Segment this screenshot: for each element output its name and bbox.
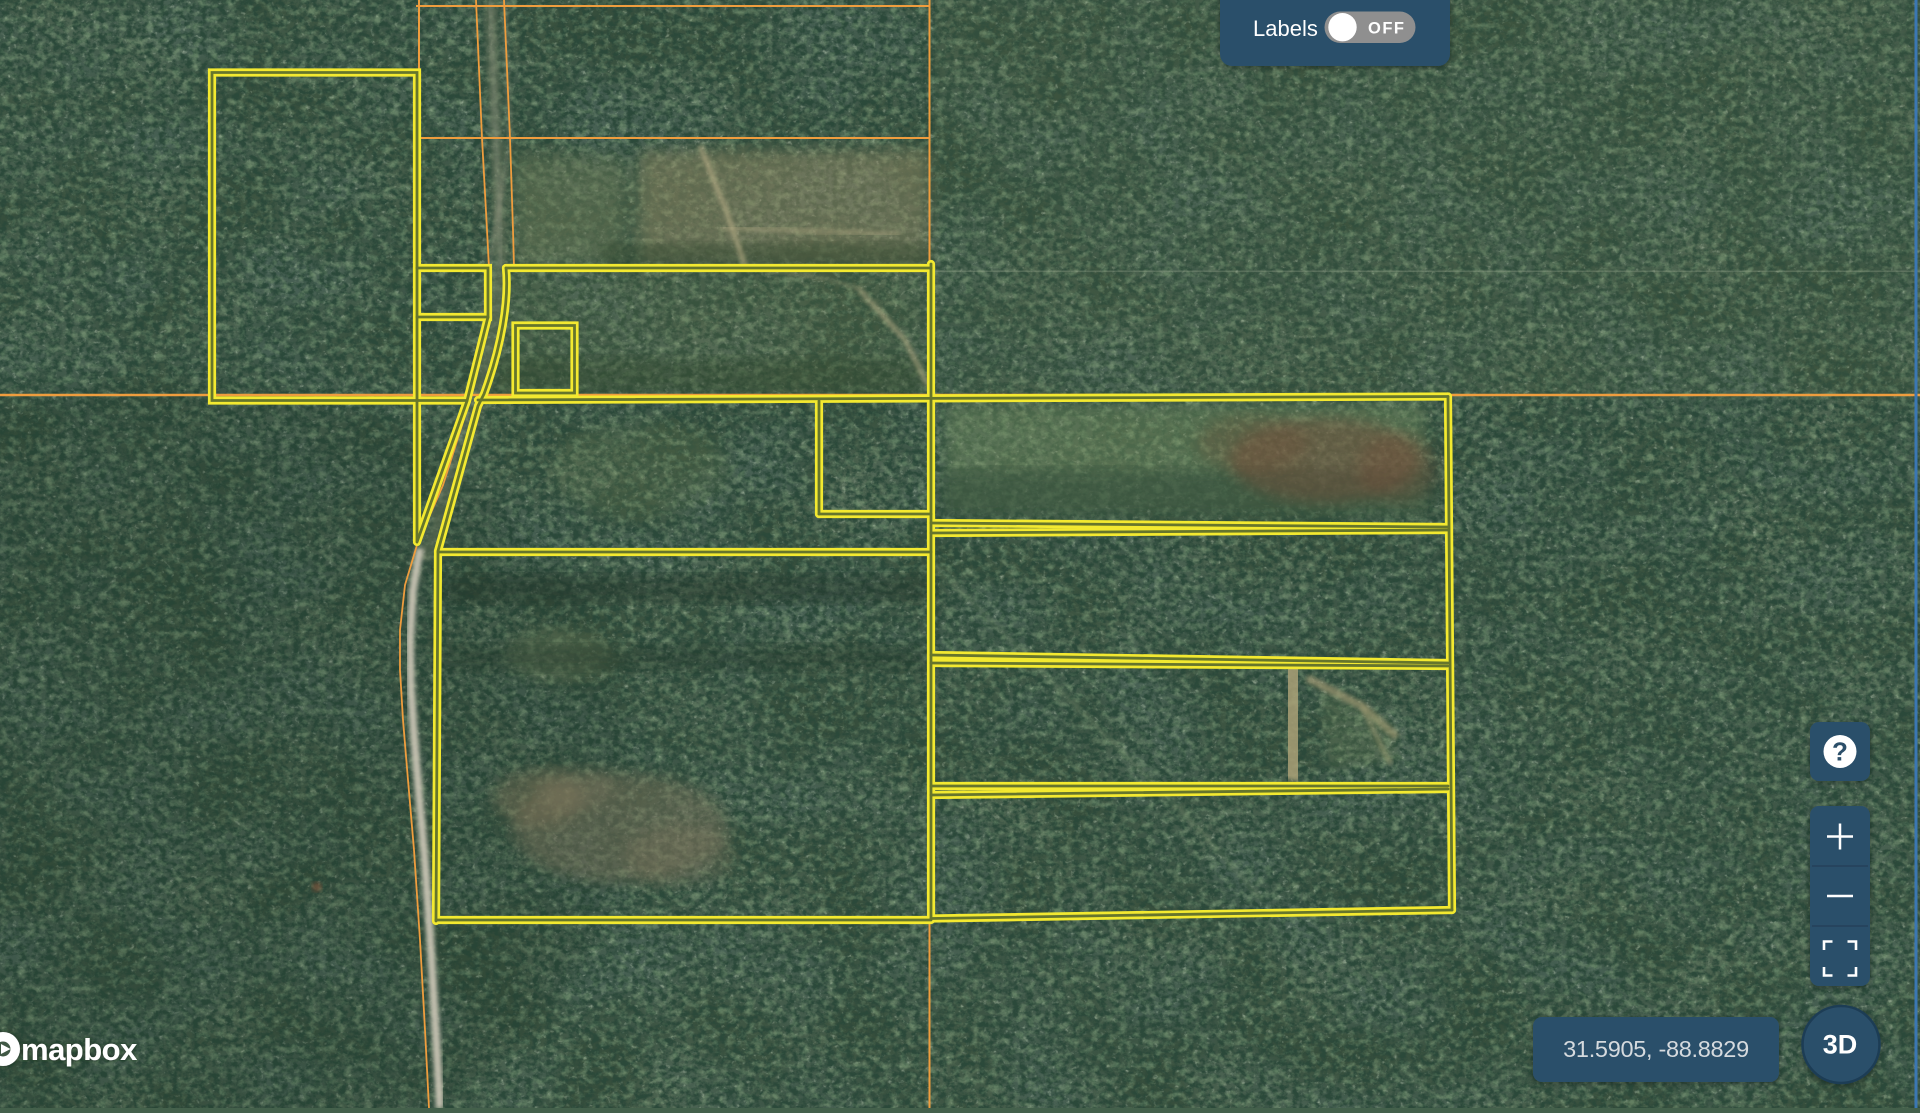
svg-text:31.5905, -88.8829: 31.5905, -88.8829 [1563, 1036, 1749, 1062]
svg-text:?: ? [1832, 737, 1848, 767]
svg-text:OFF: OFF [1368, 20, 1406, 38]
svg-text:mapbox: mapbox [21, 1032, 138, 1067]
svg-text:3D: 3D [1823, 1030, 1858, 1060]
svg-text:Labels: Labels [1253, 16, 1318, 41]
